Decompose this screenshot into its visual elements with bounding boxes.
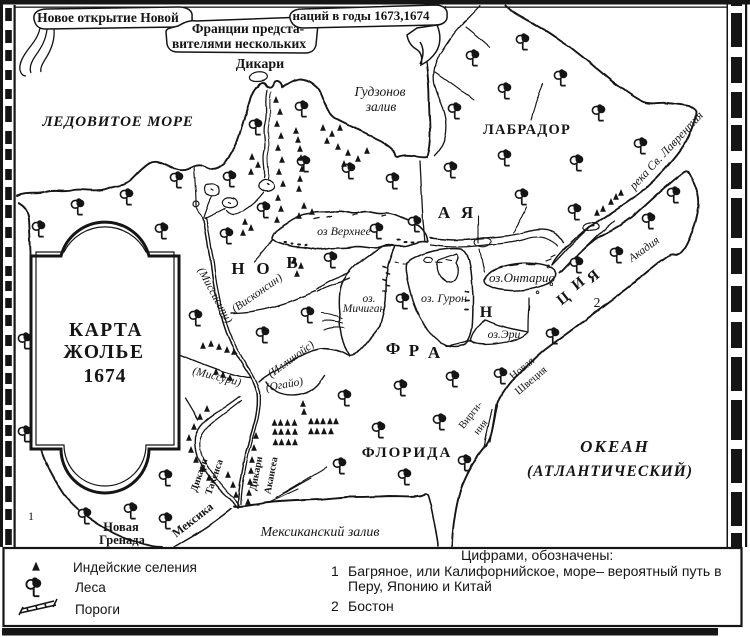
- svg-text:Н: Н: [480, 304, 493, 321]
- svg-text:ЛЕДОВИТОЕ МОРЕ: ЛЕДОВИТОЕ МОРЕ: [41, 114, 193, 130]
- svg-text:1: 1: [28, 509, 34, 523]
- svg-text:Р: Р: [409, 341, 419, 360]
- svg-text:ОКЕАН: ОКЕАН: [580, 437, 650, 456]
- svg-text:Перу, Японию и Китай: Перу, Японию и Китай: [348, 578, 492, 594]
- svg-text:Н: Н: [231, 259, 244, 278]
- svg-text:ЛАБРАДОР: ЛАБРАДОР: [483, 122, 571, 138]
- svg-text:вителями нескольких: вителями нескольких: [172, 36, 306, 51]
- svg-text:Багряное, или Калифорнийское,: Багряное, или Калифорнийское, море– веро…: [348, 563, 722, 579]
- svg-text:1: 1: [331, 563, 339, 579]
- svg-text:А: А: [438, 203, 451, 222]
- svg-text:оз.Эри: оз.Эри: [488, 327, 521, 341]
- svg-text:Цифрами, обозначены:: Цифрами, обозначены:: [461, 547, 613, 563]
- svg-text:В: В: [286, 253, 297, 272]
- svg-text:Дикари: Дикари: [236, 57, 284, 72]
- svg-text:Мексиканский залив: Мексиканский залив: [260, 525, 380, 540]
- svg-text:Новая: Новая: [103, 520, 139, 534]
- svg-text:О: О: [256, 259, 269, 278]
- svg-text:Пороги: Пороги: [75, 602, 120, 617]
- svg-text:Индейские селения: Индейские селения: [73, 560, 197, 575]
- svg-text:А: А: [428, 343, 441, 362]
- svg-text:Франции предста-: Франции предста-: [192, 21, 304, 36]
- svg-text:1674: 1674: [84, 366, 127, 387]
- svg-text:Бостон: Бостон: [348, 598, 394, 614]
- svg-text:(АТЛАНТИЧЕСКИЙ): (АТЛАНТИЧЕСКИЙ): [527, 462, 693, 480]
- svg-text:Новое открытие Новой: Новое открытие Новой: [37, 10, 179, 25]
- svg-text:КАРТА: КАРТА: [69, 320, 143, 341]
- svg-text:Ф: Ф: [386, 339, 401, 358]
- svg-text:2: 2: [331, 598, 339, 614]
- svg-text:оз.Онтарио: оз.Онтарио: [489, 270, 556, 285]
- svg-text:Леса: Леса: [75, 580, 106, 595]
- svg-text:Гудзонов: Гудзонов: [353, 84, 405, 99]
- svg-text:залив: залив: [365, 99, 397, 114]
- svg-text:Я: Я: [461, 203, 473, 222]
- svg-text:оз. Гурон: оз. Гурон: [421, 291, 467, 305]
- svg-text:оз Верхнее: оз Верхнее: [317, 224, 372, 238]
- svg-text:наций в годы 1673,1674: наций в годы 1673,1674: [293, 8, 430, 23]
- svg-text:ФЛОРИДА: ФЛОРИДА: [362, 445, 453, 461]
- svg-text:ЖОЛЬЕ: ЖОЛЬЕ: [64, 342, 145, 363]
- svg-text:2: 2: [594, 295, 601, 310]
- svg-text:Гренада: Гренада: [99, 533, 145, 547]
- svg-text:Мичиган: Мичиган: [342, 303, 386, 315]
